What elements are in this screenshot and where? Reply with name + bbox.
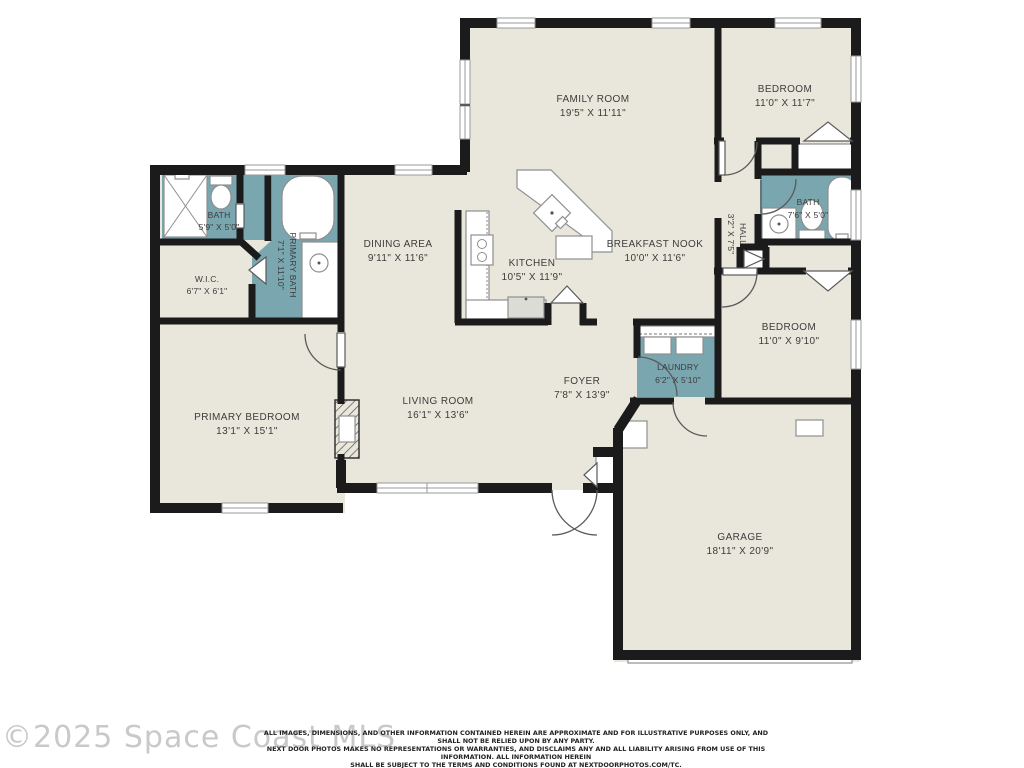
room-label: BEDROOM [758, 84, 812, 95]
room-dims: 6'2" X 5'10" [655, 375, 701, 385]
room-dims: 13'1" X 15'1" [216, 426, 278, 437]
window [460, 60, 470, 104]
window [851, 56, 861, 102]
garage-equipment [796, 420, 823, 436]
room-label: BATH [797, 197, 820, 207]
tub-faucet-icon [836, 234, 848, 239]
room-dims: 16'1" X 13'6" [407, 410, 469, 421]
disclaimer-line: ALL IMAGES, DIMENSIONS, AND OTHER INFORM… [255, 729, 777, 745]
disclaimer-line: NEXT DOOR PHOTOS MAKES NO REPRESENTATION… [255, 745, 777, 761]
room-dims: 11'0" X 9'10" [759, 336, 820, 347]
tub-faucet-icon [300, 233, 316, 239]
room-dims: 9'11" X 11'6" [368, 253, 428, 264]
room-label: PRIMARY BATH [288, 232, 298, 297]
bedroom-tr-closet [796, 144, 856, 171]
dryer [676, 337, 703, 354]
room-label: FOYER [564, 376, 600, 387]
window [377, 483, 428, 493]
garage-floor [614, 398, 860, 662]
window [427, 483, 478, 493]
room-dims: 6'7" X 6'1" [187, 286, 228, 296]
room-label: HALL [738, 223, 748, 245]
room-dims: 10'5" X 11'9" [502, 272, 563, 283]
fireplace-box [339, 416, 355, 442]
room-label: FAMILY ROOM [557, 94, 630, 105]
room-dims: 18'11" X 20'9" [707, 546, 774, 557]
room-dims: 7'8" X 13'9" [554, 390, 610, 401]
room-dims: 3'2" X 7'5" [726, 214, 736, 255]
room-label: GARAGE [717, 532, 762, 543]
room-label: W.I.C. [195, 274, 219, 284]
room-label: LIVING ROOM [402, 396, 473, 407]
toilet-tank [210, 176, 232, 185]
window [652, 18, 690, 28]
room-label: LAUNDRY [657, 362, 699, 372]
room-dims: 10'0" X 11'6" [625, 253, 686, 264]
room-dims: 7'6" X 5'0" [788, 210, 829, 220]
window [460, 106, 470, 139]
room-dims: 7'1" X 11'10" [276, 240, 286, 290]
window [497, 18, 535, 28]
window [395, 165, 432, 175]
disclaimer-line: SHALL BE SUBJECT TO THE TERMS AND CONDIT… [255, 761, 777, 768]
laundry-shelf [637, 326, 716, 337]
room-label: KITCHEN [509, 258, 556, 269]
window [222, 503, 268, 513]
room-label: BREAKFAST NOOK [607, 239, 704, 250]
window [245, 165, 285, 175]
floor-plan-drawing: FAMILY ROOM 19'5" X 11'11" BEDROOM 11'0"… [0, 0, 1024, 768]
floor-plan-page: FAMILY ROOM 19'5" X 11'11" BEDROOM 11'0"… [0, 0, 1024, 768]
window [851, 190, 861, 240]
room-dims: 11'0" X 11'7" [755, 98, 815, 109]
window [775, 18, 821, 28]
room-dims: 19'5" X 11'11" [560, 108, 626, 119]
room-label: BATH [208, 210, 231, 220]
window [851, 320, 861, 369]
floor-areas [155, 20, 860, 662]
room-dims: 5'9" X 5'0" [199, 222, 240, 232]
disclaimer-text: ALL IMAGES, DIMENSIONS, AND OTHER INFORM… [255, 729, 777, 768]
peninsula-counter [556, 236, 592, 259]
room-label: BEDROOM [762, 322, 816, 333]
room-label: DINING AREA [364, 239, 433, 250]
toilet-icon [211, 185, 231, 209]
room-label: PRIMARY BEDROOM [194, 412, 300, 423]
washer [644, 337, 671, 354]
bathtub [282, 176, 334, 240]
